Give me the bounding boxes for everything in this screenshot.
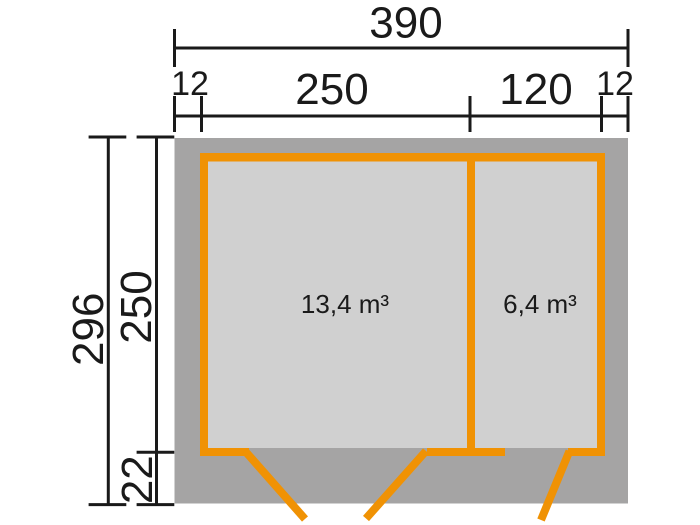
svg-text:12: 12 [171, 65, 209, 103]
svg-text:250: 250 [295, 65, 368, 114]
svg-text:120: 120 [499, 65, 572, 114]
svg-text:22: 22 [113, 455, 162, 504]
svg-text:390: 390 [369, 0, 442, 48]
svg-text:296: 296 [64, 293, 113, 366]
svg-text:13,4 m³: 13,4 m³ [301, 289, 389, 319]
svg-text:250: 250 [112, 270, 161, 343]
svg-text:6,4 m³: 6,4 m³ [503, 289, 577, 319]
